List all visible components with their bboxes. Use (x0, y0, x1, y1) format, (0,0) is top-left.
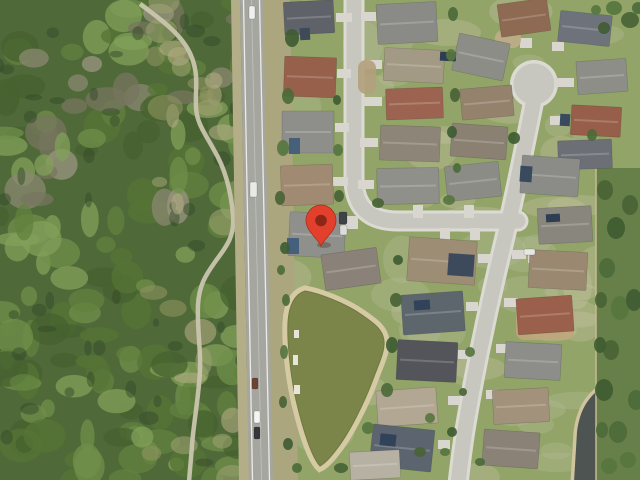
tree (277, 140, 289, 156)
tree (279, 396, 287, 408)
house (376, 1, 438, 44)
tree (450, 88, 460, 102)
tree (475, 458, 485, 466)
map-canvas[interactable] (0, 0, 640, 480)
tree (459, 388, 467, 396)
house (377, 167, 440, 204)
roof-panel (447, 253, 474, 277)
tree (596, 422, 608, 438)
tree (362, 422, 374, 434)
tree (508, 132, 520, 144)
tree (414, 447, 426, 457)
vehicle (250, 182, 257, 197)
house (321, 247, 381, 290)
tree (447, 427, 457, 437)
roof-panel (289, 138, 300, 154)
tree (595, 292, 607, 308)
tree (607, 217, 625, 239)
roof-panel (519, 166, 532, 183)
roof-panel (546, 214, 560, 223)
vehicle (252, 378, 258, 389)
tree (334, 190, 344, 202)
tree (282, 88, 294, 104)
vehicle (524, 249, 535, 255)
house (401, 291, 466, 335)
tree (599, 258, 615, 278)
vehicle (249, 6, 255, 19)
vehicle (339, 212, 347, 224)
house (379, 125, 440, 162)
tree (598, 22, 610, 34)
tree (386, 337, 398, 353)
house (492, 388, 550, 425)
house (516, 295, 574, 335)
house (576, 58, 628, 94)
house (482, 429, 540, 469)
tree (393, 255, 403, 265)
tree (280, 242, 290, 254)
tree (601, 458, 617, 474)
tree (453, 163, 461, 173)
roof-panel (560, 114, 571, 127)
house (383, 47, 445, 83)
house (444, 161, 501, 201)
tree (282, 294, 290, 306)
house (396, 339, 458, 382)
tree (277, 265, 285, 275)
forest-area (0, 0, 269, 480)
house (349, 450, 400, 480)
tree (609, 421, 627, 443)
roof-panel (414, 299, 431, 310)
tree (334, 463, 348, 473)
tree (597, 180, 613, 200)
tree (594, 337, 606, 353)
tree (390, 293, 402, 307)
bank-object (293, 355, 298, 365)
tree (620, 452, 636, 468)
vehicle (254, 411, 260, 423)
tree (283, 438, 293, 450)
house (504, 342, 562, 381)
tree (275, 191, 285, 205)
house (450, 123, 508, 160)
house (528, 250, 588, 291)
tree (587, 129, 597, 141)
pin-dot (315, 215, 327, 227)
tree (333, 144, 343, 156)
house (280, 164, 333, 206)
tree (280, 345, 288, 359)
house (385, 87, 443, 120)
satellite-imagery (0, 0, 640, 480)
bank-object (294, 385, 300, 394)
tree (448, 7, 458, 21)
tree (443, 195, 455, 205)
tree (372, 198, 384, 208)
roof-panel (379, 433, 396, 447)
tree (440, 448, 450, 456)
tree (595, 379, 613, 401)
vehicle (340, 225, 347, 235)
tree (465, 347, 475, 357)
tree (333, 95, 341, 105)
tree (292, 463, 302, 473)
tree (622, 195, 638, 215)
tree (285, 29, 299, 47)
tree (621, 12, 639, 28)
bank-object (294, 330, 299, 338)
roof-panel (300, 28, 311, 41)
tree (446, 49, 456, 61)
house (460, 85, 515, 120)
tree (425, 413, 435, 423)
tree (447, 126, 457, 138)
house (497, 0, 551, 37)
tree (381, 383, 393, 397)
tree (606, 1, 622, 15)
tree (591, 5, 601, 15)
vehicle (254, 427, 260, 439)
house (537, 206, 593, 245)
